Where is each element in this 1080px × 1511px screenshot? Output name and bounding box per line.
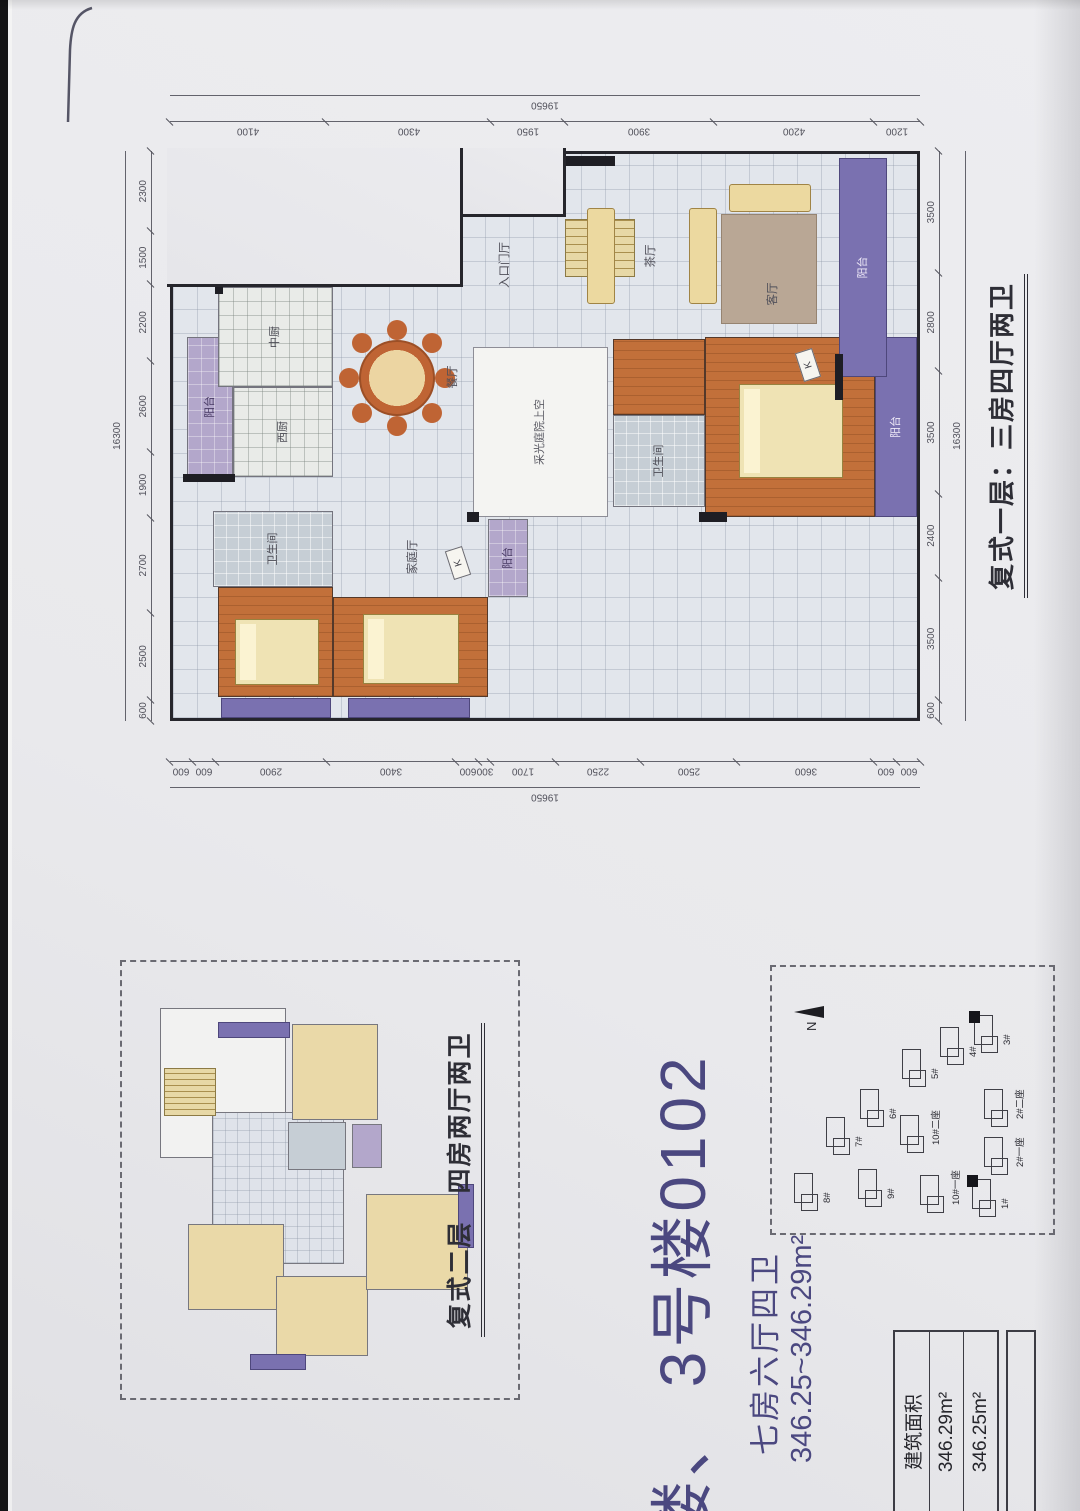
kitchen-western: 西厨 — [233, 387, 333, 477]
sofa-tea-1 — [587, 208, 615, 304]
site-building: 6# — [860, 1089, 899, 1119]
building-outline-icon — [940, 1027, 959, 1057]
room-label: 卫生间 — [653, 445, 665, 478]
room-label: K — [802, 360, 815, 370]
dim-segment: 4100 — [170, 109, 326, 135]
photo-of-floorplan-page: 163006002500270019002600220015002300 196… — [0, 0, 1080, 1511]
page-title: 楼、 3号楼0102 — [632, 1053, 724, 1511]
building-label: 2#二座 — [1012, 1089, 1026, 1119]
room-label: 客厅 — [767, 283, 780, 306]
bed-parents — [739, 384, 843, 478]
building-label: 3# — [1002, 1015, 1013, 1045]
site-building: 10#二座 — [900, 1110, 942, 1145]
floor1-caption-text: 复式一层：三房四厅两卫 — [987, 274, 1028, 598]
label-dining: 餐厅 — [445, 332, 461, 422]
site-building: 2#一座 — [984, 1137, 1026, 1167]
dim-segment: 600 — [170, 749, 193, 775]
room-label: 卫生间 — [267, 533, 279, 566]
dim-segment: 3500 — [926, 371, 952, 493]
room-label: 采光庭院上空 — [534, 399, 546, 465]
table-row: 346.29m² — [929, 1332, 963, 1511]
room-label: 家庭厅 — [407, 540, 420, 575]
room-label: 阳台 — [890, 416, 902, 438]
room-a — [188, 1224, 284, 1310]
dim-segment: 2200 — [138, 284, 164, 361]
building-label: 9# — [886, 1169, 897, 1199]
plan-notch — [167, 148, 463, 287]
building-outline-icon — [972, 1179, 991, 1209]
dim-segments: 410043001950390042001200 — [170, 109, 920, 135]
table-partial-row — [1006, 1330, 1036, 1511]
building-label: 10#一座 — [948, 1170, 962, 1205]
room-label: 茶厅 — [645, 245, 658, 268]
room-b — [276, 1276, 368, 1356]
dim-chain-bottom: 6003500240035002800350016300 — [926, 151, 978, 721]
building-label: 7# — [854, 1117, 865, 1147]
wall-1 — [183, 474, 235, 482]
building-outline-icon — [860, 1089, 879, 1119]
room-label: 入口门厅 — [499, 242, 512, 288]
balcony-living: 阳台 — [839, 158, 887, 377]
balcony-side-1 — [221, 698, 331, 718]
stairs-2f — [164, 1068, 216, 1116]
balcony-2f-1 — [250, 1354, 306, 1370]
room-label: 餐厅 — [447, 366, 460, 389]
bath-2f — [288, 1122, 346, 1170]
north-arrow-icon — [794, 1006, 824, 1018]
photo-edge-highlight — [8, 0, 12, 1511]
kitchen-chinese: 中厨 — [218, 287, 333, 387]
building-outline-icon — [974, 1015, 993, 1045]
photo-edge-strip — [0, 0, 8, 1511]
dim-segment: 1700 — [491, 749, 556, 775]
dim-segments: 6006002900340060030017002250250036006006… — [170, 749, 920, 775]
dim-segment: 3600 — [737, 749, 874, 775]
floor2-caption-text: 复式二层 四房两厅两卫 — [446, 1024, 485, 1337]
dim-chain-top: 163006002500270019002600220015002300 — [112, 151, 164, 721]
north-label: N — [804, 1022, 819, 1031]
room-d — [292, 1024, 378, 1120]
table-row: 346.25m² — [963, 1332, 997, 1511]
dim-segment: 1500 — [138, 231, 164, 283]
building-outline-icon — [858, 1169, 877, 1199]
dining-table — [359, 340, 435, 416]
room-label: K — [452, 558, 465, 568]
dim-segment: 4200 — [714, 109, 874, 135]
dim-segment: 600 — [193, 749, 216, 775]
floor1-plan: 163006002500270019002600220015002300 196… — [84, 27, 1034, 847]
room-label: 阳台 — [204, 396, 216, 418]
dim-total: 19650 — [170, 83, 920, 109]
building-outline-icon — [902, 1049, 921, 1079]
corridor — [613, 339, 705, 415]
dim-segment: 1900 — [138, 452, 164, 518]
building-outline-icon — [920, 1175, 939, 1205]
wall-5 — [835, 354, 843, 400]
dim-segment: 2700 — [138, 518, 164, 612]
dim-segments: 60035002400350028003500 — [926, 151, 952, 721]
site-building: 2#二座 — [984, 1089, 1026, 1119]
wall-6 — [699, 512, 727, 522]
label-tea: 茶厅 — [643, 218, 659, 294]
sofa-tea-2 — [689, 208, 717, 304]
dim-total: 16300 — [952, 151, 978, 721]
dim-segment: 600 — [897, 749, 920, 775]
site-plan: N 8#7#9#6#10#二座5#10#一座4#3#1#2#一座2#二座 — [770, 965, 1055, 1235]
balcony-2f-2 — [218, 1022, 290, 1038]
site-building: 3# — [974, 1015, 1013, 1045]
dim-total: 16300 — [112, 151, 138, 721]
dim-segment: 3500 — [926, 151, 952, 273]
unit-area-range: 346.25~346.29m² — [786, 1235, 819, 1463]
site-building: 8# — [794, 1173, 833, 1203]
dim-segment: 3500 — [926, 578, 952, 700]
site-building: 9# — [858, 1169, 897, 1199]
plan-notch — [463, 148, 566, 217]
k-mark-2: K — [445, 546, 471, 580]
label-family: 家庭厅 — [405, 512, 421, 602]
dim-segment: 2500 — [641, 749, 736, 775]
balcony-side-2 — [348, 698, 470, 718]
dim-segment: 600 — [874, 749, 897, 775]
bathroom-2: 卫生间 — [613, 415, 705, 507]
building-label: 6# — [888, 1089, 899, 1119]
dim-segment: 2400 — [926, 494, 952, 578]
dim-chain-right: 41004300195039004200120019650 — [170, 83, 920, 135]
dim-segment: 1950 — [491, 109, 565, 135]
dim-segment: 1200 — [874, 109, 920, 135]
building-outline-icon — [984, 1089, 1003, 1119]
site-building: 1# — [972, 1179, 1011, 1209]
north-compass: N — [794, 1006, 824, 1031]
dim-segment: 2250 — [556, 749, 642, 775]
table-header-text: 建筑面积 — [899, 1394, 926, 1470]
dim-total: 19650 — [170, 775, 920, 801]
dim-segment: 3400 — [327, 749, 457, 775]
table-cell-text: 346.25m² — [970, 1392, 992, 1472]
label-living: 客厅 — [765, 256, 781, 332]
building-label: 2#一座 — [1012, 1137, 1026, 1167]
wall-4 — [559, 156, 615, 166]
building-outline-icon — [984, 1137, 1003, 1167]
building-label: 1# — [1000, 1179, 1011, 1209]
room-label: 中厨 — [269, 326, 281, 348]
dim-segment: 600 — [926, 700, 952, 721]
floor2-caption: 复式二层 四房两厅两卫 — [440, 960, 476, 1400]
dim-segment: 2900 — [216, 749, 327, 775]
dim-segment: 4300 — [326, 109, 490, 135]
floor1-caption: 复式一层：三房四厅两卫 — [982, 151, 1019, 721]
building-outline-icon — [900, 1115, 919, 1145]
page-edge-shadow — [1034, 0, 1080, 1511]
building-outline-icon — [794, 1173, 813, 1203]
dim-segment: 2600 — [138, 361, 164, 452]
lightwell: 采光庭院上空 — [473, 347, 608, 517]
building-outline-icon — [826, 1117, 845, 1147]
building-label: 8# — [822, 1173, 833, 1203]
bathroom-1: 卫生间 — [213, 511, 333, 587]
table-cell-text: 346.29m² — [936, 1392, 958, 1472]
dim-segment: 2800 — [926, 273, 952, 371]
photo-top-shadow — [0, 0, 1080, 10]
building-label: 10#二座 — [928, 1110, 942, 1145]
dim-segment: 600 — [138, 700, 164, 721]
dim-segment: 3900 — [565, 109, 714, 135]
label-entry: 入口门厅 — [497, 218, 513, 312]
sofa-living — [729, 184, 811, 212]
site-building: 7# — [826, 1117, 865, 1147]
bed-2 — [363, 614, 459, 684]
unit-spec: 七房六厅四卫 — [740, 1251, 785, 1455]
page-fold-line — [0, 0, 130, 150]
site-building: 5# — [902, 1049, 941, 1079]
room-label: 阳台 — [502, 547, 514, 569]
table-header-cell: 建筑面积 — [895, 1332, 929, 1511]
room-label: 阳台 — [857, 257, 869, 279]
dim-segments: 6002500270019002600220015002300 — [138, 151, 164, 721]
room-label: 西厨 — [277, 421, 289, 443]
page-landscape-content: 163006002500270019002600220015002300 196… — [0, 0, 1080, 1511]
dim-segment: 2300 — [138, 151, 164, 231]
dim-chain-left: 1965060060029003400600300170022502500360… — [170, 749, 920, 801]
dim-segment: 2500 — [138, 613, 164, 700]
balcony-family: 阳台 — [488, 519, 528, 597]
bed-1 — [235, 619, 319, 685]
wall-3 — [467, 512, 479, 522]
site-building: 10#一座 — [920, 1170, 962, 1205]
balcony-2f-4 — [352, 1124, 382, 1168]
area-table: 建筑面积 346.29m² 346.25m² — [893, 1330, 999, 1511]
